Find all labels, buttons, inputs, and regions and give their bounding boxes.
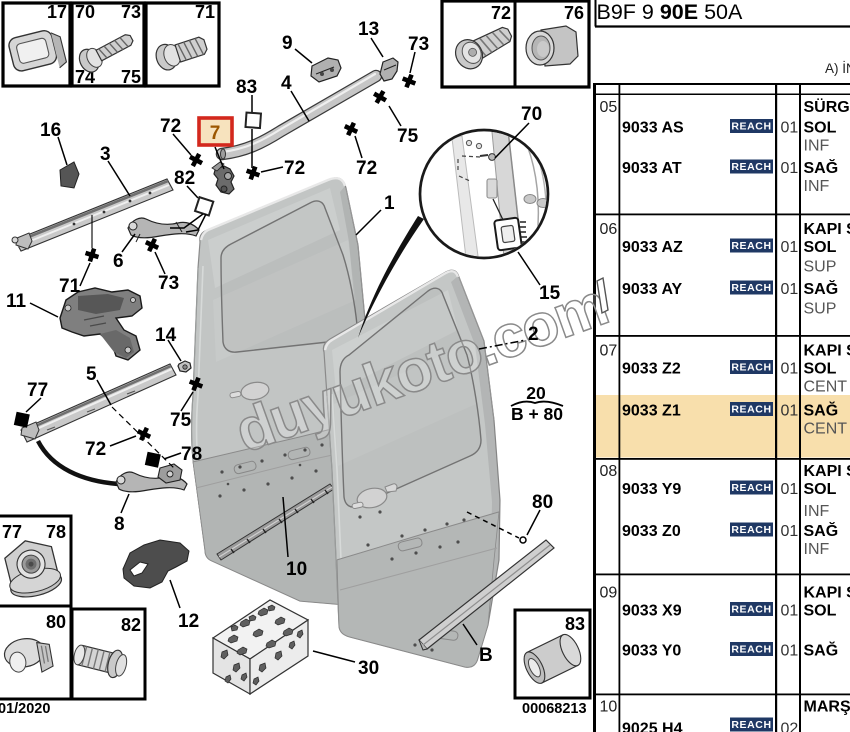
svg-text:01/2020: 01/2020: [0, 701, 50, 717]
svg-text:70: 70: [75, 2, 95, 22]
svg-text:SAĞ: SAĞ: [804, 641, 839, 660]
svg-text:9025 H4: 9025 H4: [622, 721, 683, 732]
svg-text:5: 5: [86, 364, 97, 385]
svg-text:REACH: REACH: [731, 282, 771, 294]
svg-text:INF: INF: [804, 503, 830, 520]
svg-text:14: 14: [155, 325, 177, 346]
svg-text:9033 Y9: 9033 Y9: [622, 481, 681, 498]
svg-text:CENT: CENT: [804, 379, 848, 396]
svg-text:9033 AS: 9033 AS: [622, 120, 684, 137]
svg-text:75: 75: [121, 67, 141, 87]
svg-text:7: 7: [210, 123, 221, 144]
svg-text:78: 78: [181, 444, 202, 465]
svg-text:9033 Z1: 9033 Z1: [622, 403, 681, 420]
svg-text:REACH: REACH: [731, 604, 771, 616]
svg-text:9033 AY: 9033 AY: [622, 281, 683, 298]
svg-text:2: 2: [528, 324, 539, 345]
svg-text:SAĞ: SAĞ: [804, 279, 839, 298]
svg-text:MARŞPİYEL: MARŞPİYEL: [804, 698, 850, 716]
svg-text:9033 Y0: 9033 Y0: [622, 643, 681, 660]
svg-text:SOL: SOL: [804, 603, 837, 620]
svg-text:01: 01: [781, 403, 799, 420]
svg-text:A) İN: A) İN: [825, 61, 850, 76]
svg-text:70: 70: [521, 104, 542, 125]
svg-text:SAĞ: SAĞ: [804, 158, 839, 177]
svg-text:6: 6: [113, 251, 124, 272]
svg-text:SOL: SOL: [804, 361, 837, 378]
svg-text:09: 09: [600, 585, 618, 602]
svg-text:9033 AZ: 9033 AZ: [622, 239, 683, 256]
svg-text:REACH: REACH: [731, 644, 771, 656]
svg-text:01: 01: [781, 603, 799, 620]
svg-text:REACH: REACH: [731, 524, 771, 536]
svg-text:72: 72: [85, 439, 106, 460]
svg-text:01: 01: [781, 523, 799, 540]
svg-text:SUP: SUP: [804, 259, 837, 276]
svg-text:12: 12: [178, 611, 199, 632]
svg-text:8: 8: [114, 514, 125, 535]
svg-text:20: 20: [526, 383, 546, 403]
svg-text:05: 05: [600, 99, 618, 116]
svg-text:KAPI ŞASI: KAPI ŞASI: [804, 221, 850, 238]
svg-text:82: 82: [174, 168, 195, 189]
svg-text:3: 3: [100, 144, 111, 165]
svg-text:75: 75: [170, 410, 192, 431]
svg-text:4: 4: [281, 73, 292, 94]
svg-text:80: 80: [532, 492, 553, 513]
svg-text:78: 78: [46, 522, 66, 542]
svg-text:72: 72: [160, 116, 181, 137]
svg-text:73: 73: [158, 273, 179, 294]
svg-text:72: 72: [491, 3, 511, 23]
svg-text:75: 75: [397, 126, 419, 147]
svg-text:01: 01: [781, 120, 799, 137]
svg-text:80: 80: [46, 612, 66, 632]
svg-text:REACH: REACH: [731, 719, 771, 731]
svg-text:01: 01: [781, 481, 799, 498]
svg-text:9033 X9: 9033 X9: [622, 603, 682, 620]
svg-text:SAĞ: SAĞ: [804, 401, 839, 420]
svg-text:01: 01: [781, 160, 799, 177]
svg-text:9033 Z0: 9033 Z0: [622, 523, 681, 540]
svg-text:15: 15: [539, 283, 561, 304]
svg-text:INF: INF: [804, 541, 830, 558]
svg-text:30: 30: [358, 658, 379, 679]
svg-text:1: 1: [384, 193, 395, 214]
svg-text:REACH: REACH: [731, 161, 771, 173]
svg-text:01: 01: [781, 239, 799, 256]
svg-text:10: 10: [286, 559, 307, 580]
svg-text:KAPI ŞASI: KAPI ŞASI: [804, 585, 850, 602]
svg-text:SAĞ: SAĞ: [804, 521, 839, 540]
svg-text:16: 16: [40, 120, 61, 141]
svg-text:02: 02: [781, 721, 799, 732]
svg-text:REACH: REACH: [731, 404, 771, 416]
svg-text:SOL: SOL: [804, 481, 837, 498]
svg-text:00068213: 00068213: [522, 701, 587, 717]
svg-text:SÜRGÜSÜ: SÜRGÜSÜ: [804, 97, 850, 116]
svg-text:REACH: REACH: [731, 240, 771, 252]
svg-text:07: 07: [600, 343, 618, 360]
svg-text:REACH: REACH: [731, 482, 771, 494]
svg-text:9: 9: [282, 33, 293, 54]
svg-text:REACH: REACH: [731, 121, 771, 133]
svg-text:72: 72: [284, 158, 305, 179]
svg-text:9033 Z2: 9033 Z2: [622, 361, 681, 378]
svg-text:83: 83: [565, 614, 585, 634]
svg-text:77: 77: [2, 522, 22, 542]
svg-text:82: 82: [121, 615, 141, 635]
svg-text:83: 83: [236, 77, 257, 98]
svg-text:10: 10: [600, 699, 618, 716]
svg-text:B + 80: B + 80: [511, 404, 563, 424]
svg-text:B9F 9 90E 50A: B9F 9 90E 50A: [597, 0, 743, 24]
svg-text:08: 08: [600, 463, 618, 480]
svg-text:B: B: [479, 645, 493, 666]
svg-text:KAPI ŞASI: KAPI ŞASI: [804, 343, 850, 360]
svg-text:76: 76: [564, 3, 584, 23]
svg-text:11: 11: [6, 291, 27, 312]
svg-text:71: 71: [195, 2, 215, 22]
svg-text:72: 72: [356, 158, 377, 179]
svg-text:INF: INF: [804, 178, 830, 195]
svg-text:73: 73: [408, 34, 429, 55]
svg-text:SOL: SOL: [804, 239, 837, 256]
svg-text:9033 AT: 9033 AT: [622, 160, 682, 177]
svg-text:06: 06: [600, 221, 618, 238]
svg-text:01: 01: [781, 361, 799, 378]
svg-text:77: 77: [27, 380, 48, 401]
svg-text:CENT: CENT: [804, 421, 848, 438]
svg-text:17: 17: [47, 2, 67, 22]
svg-text:SUP: SUP: [804, 301, 837, 318]
svg-text:71: 71: [59, 276, 81, 297]
svg-text:INF: INF: [804, 138, 830, 155]
svg-text:KAPI ŞASI: KAPI ŞASI: [804, 463, 850, 480]
svg-text:73: 73: [121, 2, 141, 22]
svg-text:01: 01: [781, 281, 799, 298]
svg-text:REACH: REACH: [731, 362, 771, 374]
svg-text:SOL: SOL: [804, 120, 837, 137]
svg-text:01: 01: [781, 643, 799, 660]
svg-text:13: 13: [358, 19, 379, 40]
